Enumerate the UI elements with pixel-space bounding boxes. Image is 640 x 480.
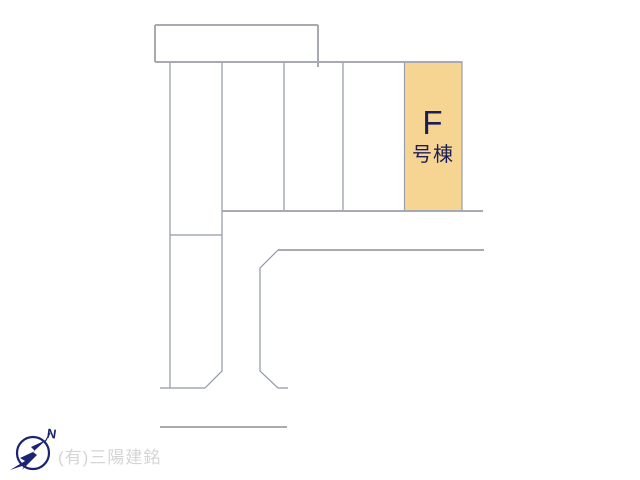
road-inner-corner xyxy=(260,250,288,388)
site-plan-canvas: F 号棟 N (有)三陽建銘 xyxy=(0,0,640,480)
plot-f-highlight xyxy=(405,62,463,211)
compass-north-label: N xyxy=(46,426,57,442)
top-parcel-outline xyxy=(155,25,318,67)
site-plan-drawing xyxy=(0,0,640,480)
compass-arrow-icon xyxy=(10,440,46,470)
plot-boundary-road-west xyxy=(205,62,222,388)
builder-watermark: (有)三陽建銘 xyxy=(58,443,161,468)
plot-boundaries xyxy=(160,62,343,388)
compass-icon: N xyxy=(6,424,62,480)
